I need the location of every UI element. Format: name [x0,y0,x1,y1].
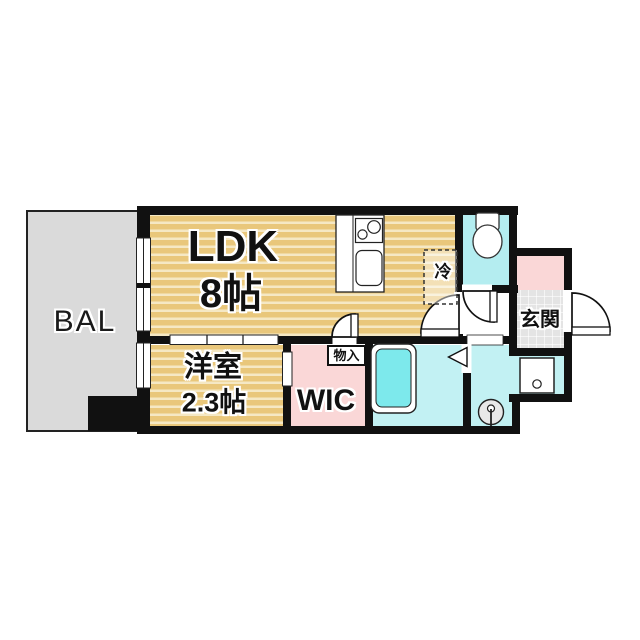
sink-icon [356,251,382,286]
label-wic: WIC [297,386,355,416]
vanity-icon [520,358,554,393]
label-balcony: BAL [54,307,117,337]
ldk-door-leaf [421,329,459,337]
label-bedroom-size: 2.3帖 [182,390,247,417]
label-entrance: 玄関 [520,310,560,330]
entrance-upper-floor [517,256,564,290]
floorplan: BAL LDK 8帖 洋室 2.3帖 WIC 玄関 冷 物入 [0,0,640,640]
label-ldk-name: LDK [188,225,278,269]
entrance-door-leaf [572,327,610,335]
entrance-door-swing [572,293,610,331]
wic-door [283,352,293,386]
toilet-icon [473,213,502,258]
bathtub-icon [371,344,416,413]
label-bedroom-name: 洋室 [184,354,242,383]
toilet-door-leaf [490,291,497,322]
storage-door-leaf [351,314,358,337]
label-ldk-size: 8帖 [200,274,262,314]
label-refrigerator: 冷 [435,264,452,281]
ldk-bedroom-sliding-door [170,335,278,345]
kitchen-counter [336,215,384,292]
washroom-opening [467,335,503,345]
label-storage: 物入 [333,349,359,362]
storage-box: 物入 [327,345,366,366]
ldk-window-mullion [137,283,150,288]
